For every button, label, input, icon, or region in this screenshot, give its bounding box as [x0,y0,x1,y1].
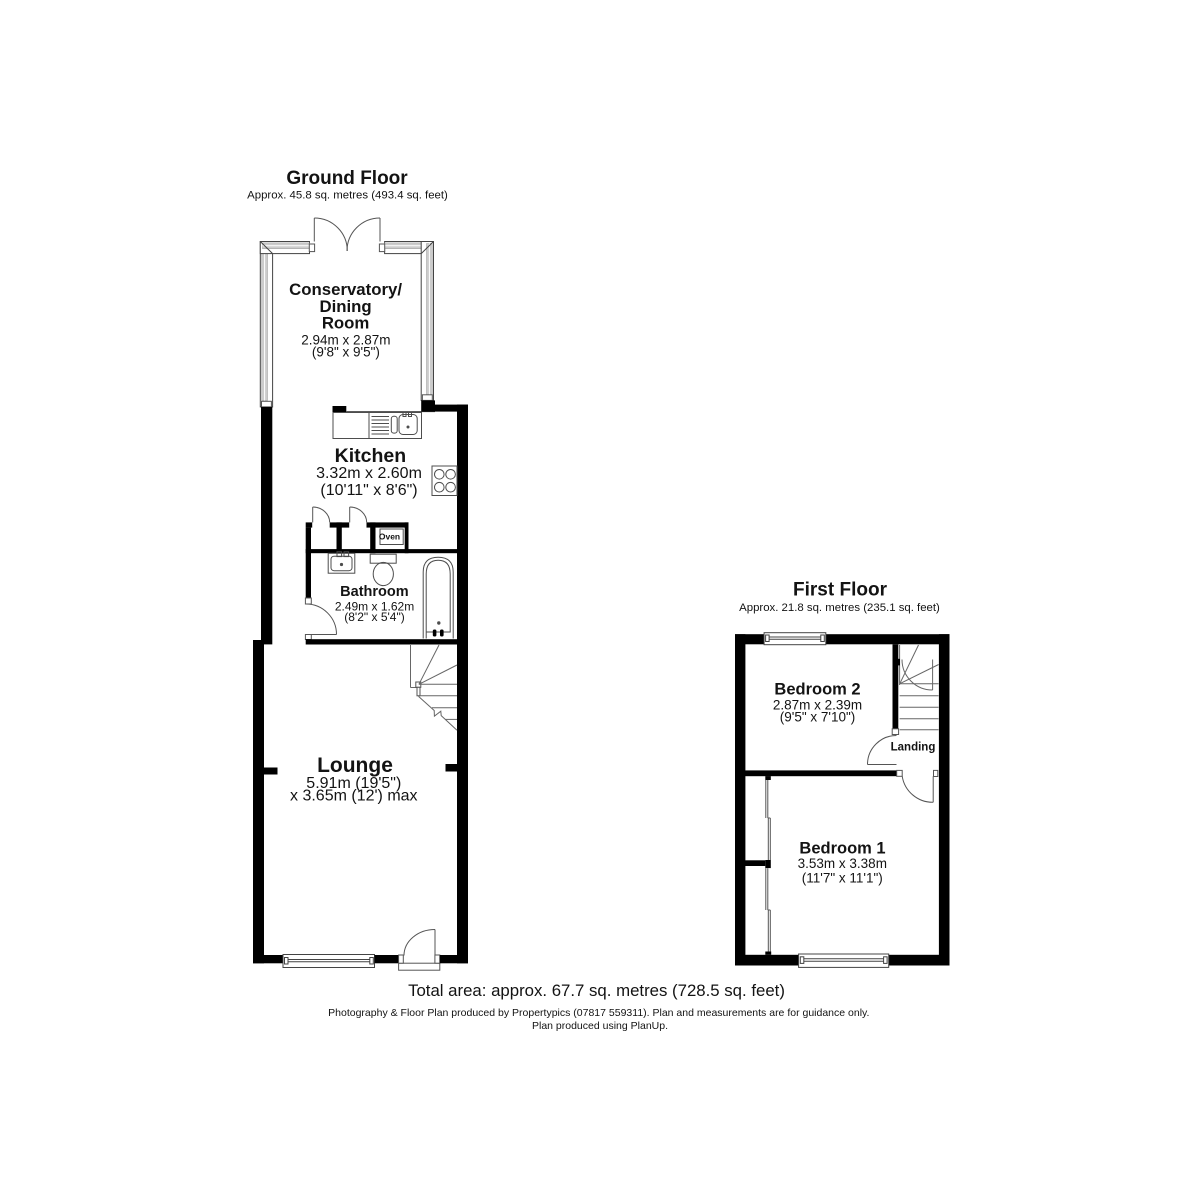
svg-text:Photography & Floor Plan produ: Photography & Floor Plan produced by Pro… [328,1007,869,1019]
svg-text:(8'2" x 5'4"): (8'2" x 5'4") [344,610,404,624]
svg-text:3.53m x 3.38m: 3.53m x 3.38m [798,856,887,871]
svg-text:Approx. 21.8 sq. metres (235.1: Approx. 21.8 sq. metres (235.1 sq. feet) [739,602,940,614]
svg-text:x 3.65m (12') max: x 3.65m (12') max [290,788,418,805]
svg-text:(10'11" x 8'6"): (10'11" x 8'6") [320,482,417,499]
svg-text:Bathroom: Bathroom [340,584,408,600]
svg-text:3.32m x 2.60m: 3.32m x 2.60m [316,465,422,482]
svg-text:Bedroom 2: Bedroom 2 [774,680,860,698]
svg-text:Ground Floor: Ground Floor [286,168,408,189]
svg-text:Lounge: Lounge [317,754,393,777]
svg-text:Approx. 45.8 sq. metres (493.4: Approx. 45.8 sq. metres (493.4 sq. feet) [247,190,448,202]
svg-text:(9'8" x 9'5"): (9'8" x 9'5") [312,345,380,360]
svg-text:Room: Room [322,314,370,333]
svg-text:Kitchen: Kitchen [335,445,407,467]
svg-text:Plan produced using PlanUp.: Plan produced using PlanUp. [532,1020,668,1032]
svg-text:First Floor: First Floor [793,580,888,601]
svg-text:Landing: Landing [891,742,936,754]
svg-text:Oven: Oven [379,531,400,541]
svg-text:Total area: approx. 67.7 sq. m: Total area: approx. 67.7 sq. metres (728… [408,981,785,1000]
svg-text:(9'5" x 7'10"): (9'5" x 7'10") [780,710,856,725]
svg-text:(11'7" x 11'1"): (11'7" x 11'1") [802,871,883,886]
